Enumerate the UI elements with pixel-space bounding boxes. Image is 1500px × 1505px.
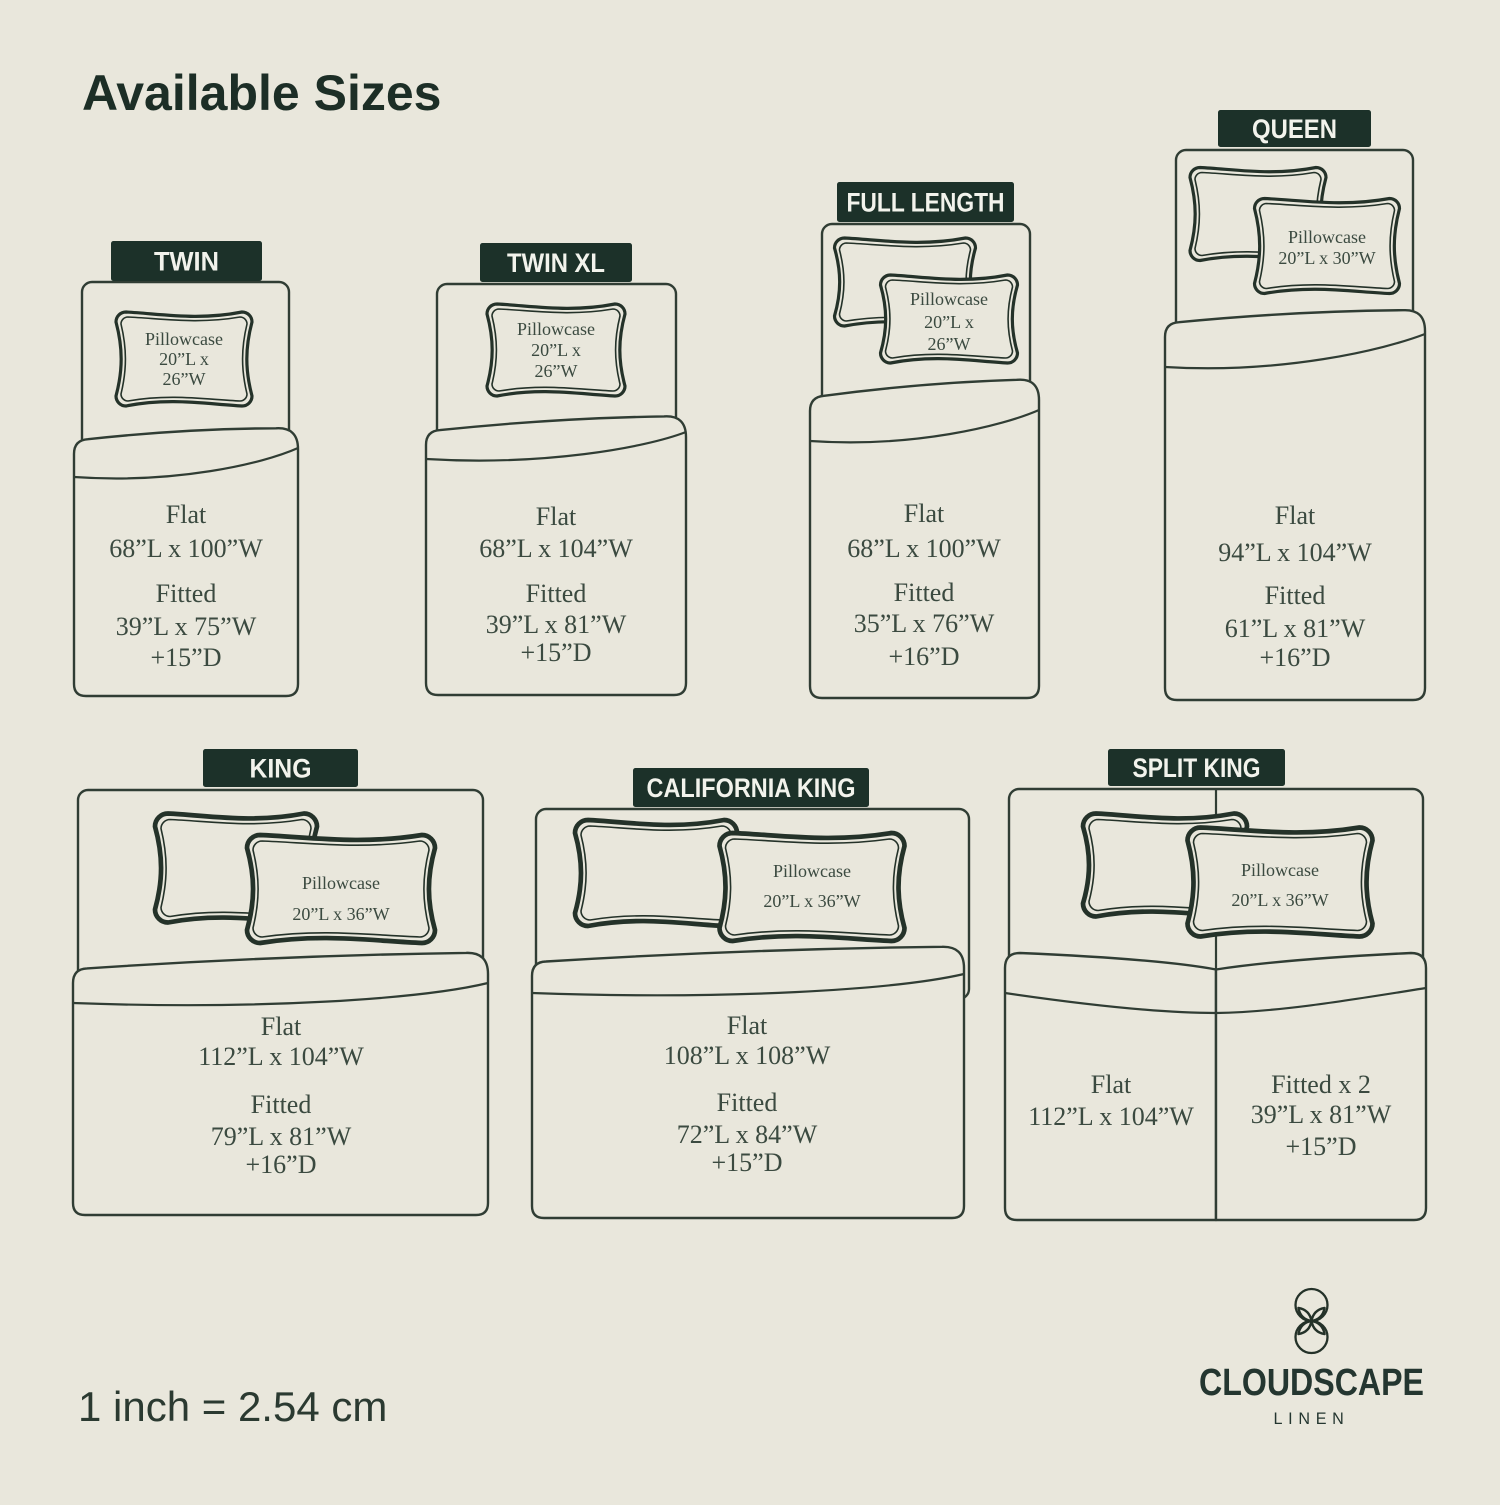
- svg-text:Flat: Flat: [1275, 501, 1316, 530]
- svg-text:Available Sizes: Available Sizes: [82, 65, 441, 121]
- svg-text:26”W: 26”W: [535, 361, 578, 381]
- svg-text:20”L x: 20”L x: [159, 349, 209, 369]
- svg-text:Fitted x 2: Fitted x 2: [1271, 1070, 1371, 1099]
- svg-text:39”L x 81”W: 39”L x 81”W: [1251, 1100, 1392, 1129]
- svg-text:Flat: Flat: [536, 502, 577, 531]
- svg-text:61”L x 81”W: 61”L x 81”W: [1225, 614, 1366, 643]
- svg-text:26”W: 26”W: [928, 334, 971, 354]
- svg-text:72”L x 84”W: 72”L x 84”W: [677, 1120, 818, 1149]
- svg-text:Fitted: Fitted: [1265, 581, 1326, 610]
- svg-text:68”L x 104”W: 68”L x 104”W: [479, 534, 633, 563]
- svg-text:TWIN: TWIN: [154, 247, 219, 277]
- svg-text:39”L x 81”W: 39”L x 81”W: [486, 610, 627, 639]
- svg-text:68”L x 100”W: 68”L x 100”W: [109, 534, 263, 563]
- svg-text:FULL LENGTH: FULL LENGTH: [847, 188, 1005, 218]
- svg-text:Pillowcase: Pillowcase: [1288, 227, 1366, 247]
- svg-text:+15”D: +15”D: [712, 1148, 783, 1177]
- svg-text:CLOUDSCAPE: CLOUDSCAPE: [1199, 1362, 1424, 1404]
- svg-text:Flat: Flat: [166, 500, 207, 529]
- svg-text:20”L x: 20”L x: [531, 340, 581, 360]
- svg-text:SPLIT KING: SPLIT KING: [1133, 753, 1261, 783]
- svg-text:+16”D: +16”D: [1260, 643, 1331, 672]
- svg-text:20”L x 36”W: 20”L x 36”W: [763, 891, 860, 911]
- svg-text:Pillowcase: Pillowcase: [1241, 860, 1319, 880]
- svg-text:112”L x 104”W: 112”L x 104”W: [1028, 1102, 1194, 1131]
- svg-text:20”L x: 20”L x: [924, 312, 974, 332]
- svg-text:+15”D: +15”D: [521, 638, 592, 667]
- svg-text:QUEEN: QUEEN: [1252, 114, 1337, 144]
- svg-text:20”L x 30”W: 20”L x 30”W: [1278, 248, 1375, 268]
- svg-text:+16”D: +16”D: [246, 1150, 317, 1179]
- svg-text:+15”D: +15”D: [151, 643, 222, 672]
- svg-text:Fitted: Fitted: [251, 1090, 312, 1119]
- svg-text:108”L x 108”W: 108”L x 108”W: [664, 1041, 831, 1070]
- svg-text:Pillowcase: Pillowcase: [145, 329, 223, 349]
- svg-text:26”W: 26”W: [163, 369, 206, 389]
- svg-text:Flat: Flat: [904, 499, 945, 528]
- svg-text:Fitted: Fitted: [894, 578, 955, 607]
- svg-text:TWIN XL: TWIN XL: [507, 248, 605, 278]
- svg-text:CALIFORNIA KING: CALIFORNIA KING: [647, 773, 856, 803]
- svg-text:+15”D: +15”D: [1286, 1132, 1357, 1161]
- svg-text:1 inch = 2.54 cm: 1 inch = 2.54 cm: [78, 1383, 387, 1430]
- svg-text:Pillowcase: Pillowcase: [773, 861, 851, 881]
- svg-text:KING: KING: [250, 754, 312, 784]
- svg-text:Pillowcase: Pillowcase: [517, 319, 595, 339]
- svg-text:39”L x 75”W: 39”L x 75”W: [116, 612, 257, 641]
- svg-text:Flat: Flat: [1091, 1070, 1132, 1099]
- svg-text:20”L x 36”W: 20”L x 36”W: [292, 904, 389, 924]
- svg-text:35”L x 76”W: 35”L x 76”W: [854, 609, 995, 638]
- svg-text:Fitted: Fitted: [526, 579, 587, 608]
- svg-text:Pillowcase: Pillowcase: [910, 289, 988, 309]
- svg-text:94”L x 104”W: 94”L x 104”W: [1218, 538, 1372, 567]
- svg-text:Flat: Flat: [727, 1011, 768, 1040]
- svg-text:112”L x 104”W: 112”L x 104”W: [198, 1042, 364, 1071]
- svg-text:Flat: Flat: [261, 1012, 302, 1041]
- svg-text:+16”D: +16”D: [889, 642, 960, 671]
- svg-text:Fitted: Fitted: [156, 579, 217, 608]
- svg-text:Pillowcase: Pillowcase: [302, 873, 380, 893]
- svg-text:79”L x 81”W: 79”L x 81”W: [211, 1122, 352, 1151]
- svg-text:LINEN: LINEN: [1274, 1409, 1350, 1428]
- svg-text:20”L x 36”W: 20”L x 36”W: [1231, 890, 1328, 910]
- svg-text:68”L x 100”W: 68”L x 100”W: [847, 534, 1001, 563]
- svg-text:Fitted: Fitted: [717, 1088, 778, 1117]
